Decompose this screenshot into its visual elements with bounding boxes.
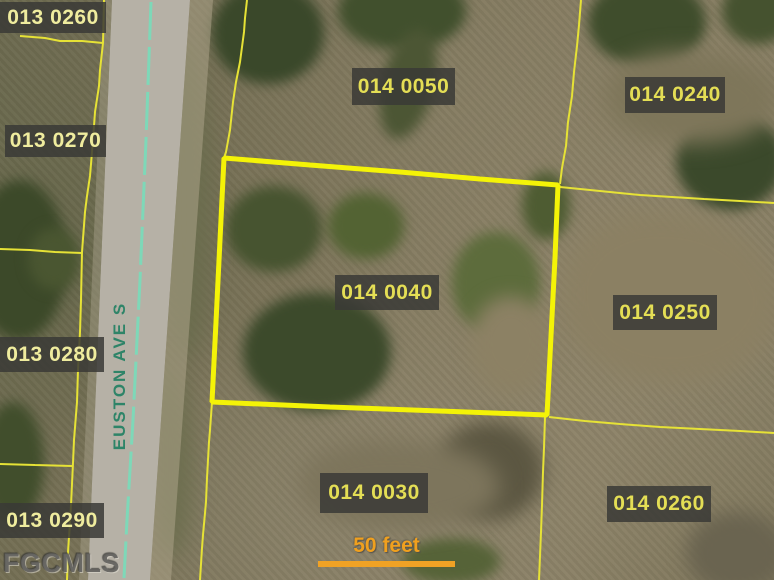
parcel-label: 013 0290: [0, 503, 104, 538]
parcel-label: 014 0240: [625, 77, 725, 113]
scale-bar: [318, 561, 455, 567]
parcel-map: EUSTON AVE S 013 0260 013 0270 013 0280 …: [0, 0, 774, 580]
parcel-label: 014 0050: [352, 68, 455, 105]
parcel-label: 014 0260: [607, 486, 711, 522]
parcel-line-0280-0290: [0, 464, 72, 466]
parcel-line-north-0250: [560, 187, 774, 203]
mls-watermark: FGCMLS: [3, 548, 120, 579]
parcel-label: 013 0270: [5, 125, 106, 157]
parcel-label: 013 0260: [0, 2, 106, 33]
scale-bar-label: 50 feet: [318, 534, 455, 558]
parcel-line-0260-0270: [20, 36, 103, 43]
street-label: EUSTON AVE S: [110, 302, 130, 450]
parcel-line-east-road-lower: [200, 402, 212, 580]
parcel-line-0030-0260: [539, 417, 545, 580]
parcel-line-0050-0240: [560, 0, 581, 184]
parcel-line-0250-0260: [549, 417, 774, 433]
parcel-label: 014 0030: [320, 473, 428, 513]
parcel-label: 014 0250: [613, 295, 717, 330]
parcel-label: 013 0280: [0, 337, 104, 372]
parcel-line-east-road-upper: [224, 0, 247, 158]
parcel-line-0270-0280: [0, 249, 82, 253]
parcel-label-highlighted: 014 0040: [335, 275, 439, 310]
